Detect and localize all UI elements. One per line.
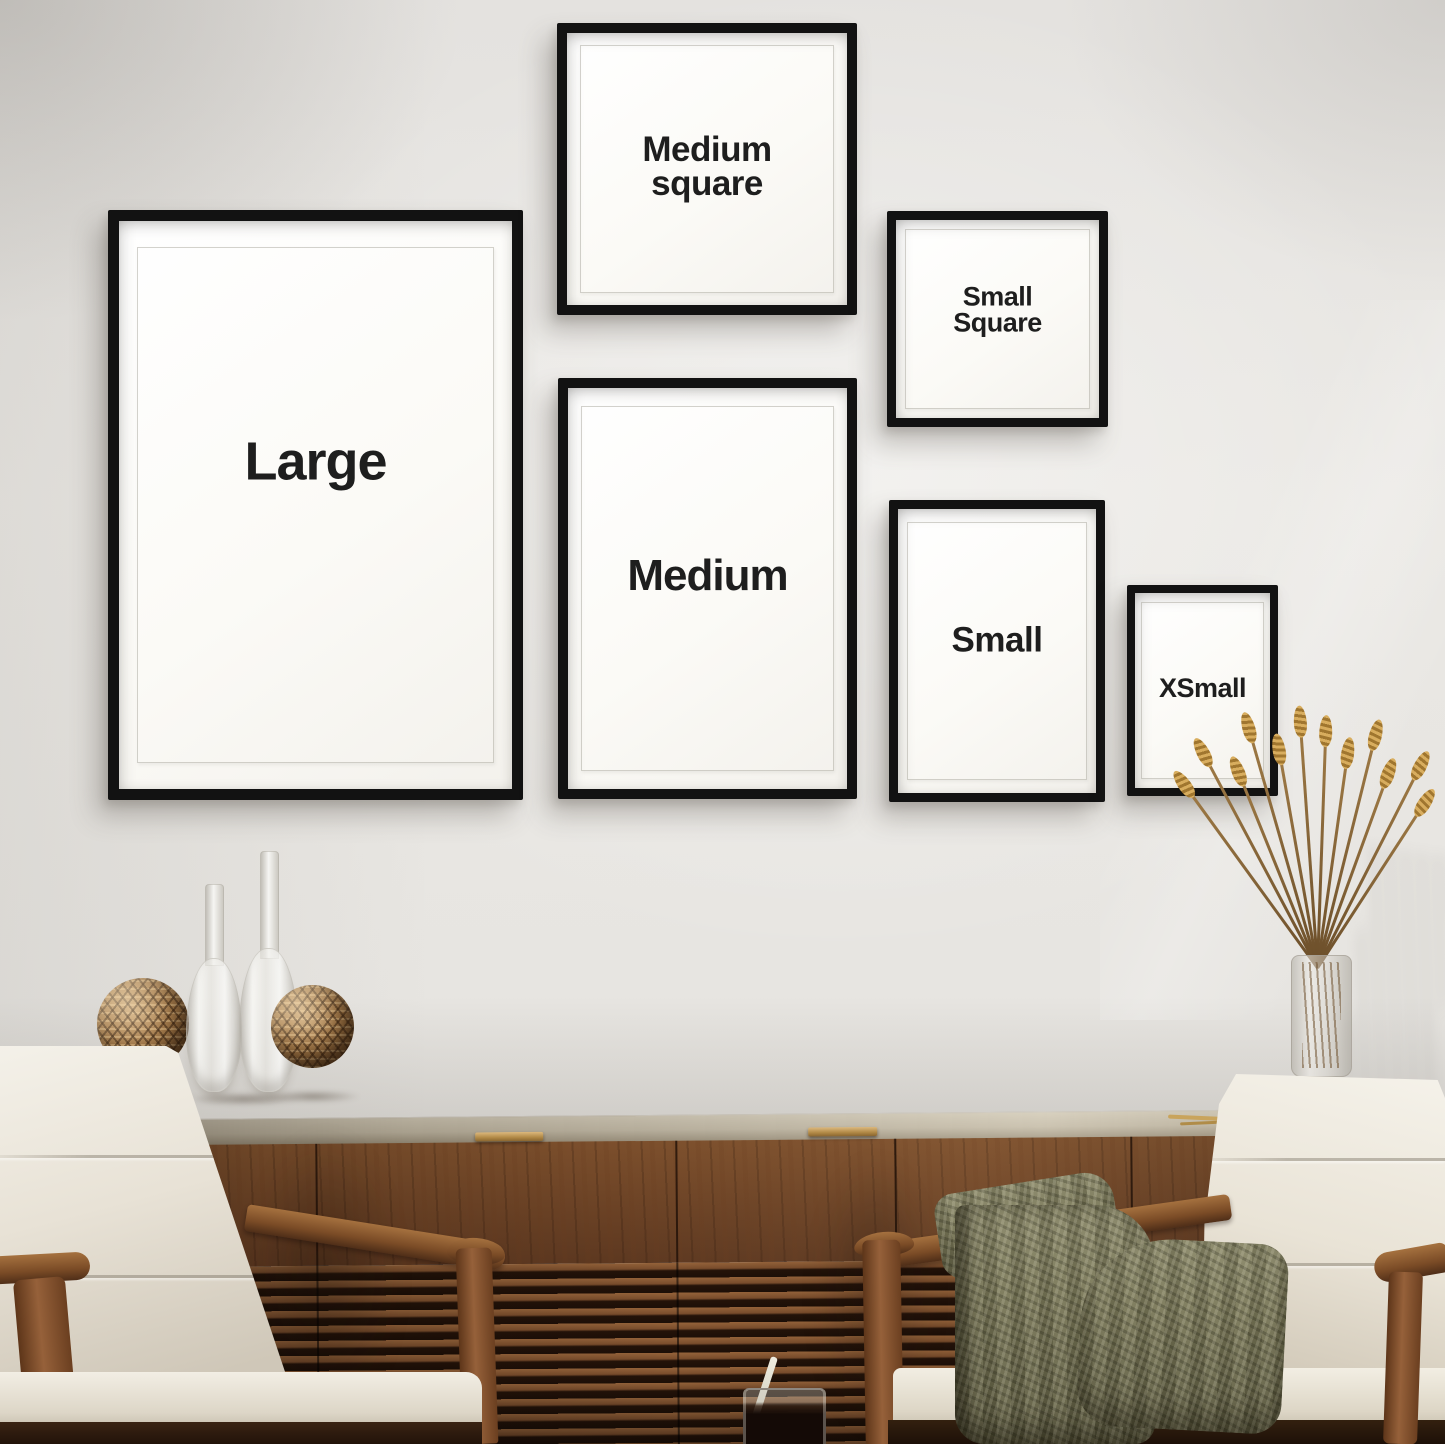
glass-vase-neck <box>260 851 279 959</box>
frame-medium-square-label-line2: square <box>642 166 771 199</box>
frame-medium-square: Medium square <box>557 23 857 315</box>
frame-medium-mat: Medium <box>568 388 847 789</box>
drink-glass <box>743 1388 826 1444</box>
glass-vase-neck <box>205 884 224 966</box>
frame-small-square-label: Small Square <box>953 284 1042 335</box>
rattan-ball <box>271 985 354 1068</box>
object-shadow <box>266 1090 360 1103</box>
right-armchair-near-leg <box>1383 1271 1423 1444</box>
glass-vase-body <box>186 958 242 1092</box>
frame-xsmall-label: XSmall <box>1159 676 1246 702</box>
frame-small: Small <box>889 500 1105 802</box>
frame-large: Large <box>108 210 523 800</box>
frame-medium-label: Medium <box>627 556 787 598</box>
frame-small-mat: Small <box>898 509 1096 793</box>
frame-large-mat: Large <box>119 221 512 789</box>
frame-medium-square-label-line1: Medium <box>642 133 771 166</box>
frame-large-label: Large <box>244 437 386 488</box>
cushion-seam <box>1202 1158 1445 1161</box>
brass-handle <box>808 1127 877 1137</box>
frame-medium: Medium <box>558 378 857 799</box>
frame-small-label: Small <box>952 623 1043 656</box>
living-room-scene: Large Medium square Small Square Medium <box>0 0 1445 1444</box>
left-armchair-frame-base <box>0 1422 482 1444</box>
olive-knit-throw <box>1075 1235 1290 1435</box>
frame-medium-square-label: Medium square <box>642 133 771 200</box>
wheat-glass-vase <box>1291 955 1352 1077</box>
frame-small-square-mat: Small Square <box>896 220 1099 418</box>
sideboard-door-seam <box>675 1141 678 1263</box>
brass-handle <box>475 1132 543 1142</box>
frame-large-mat-bevel <box>137 247 495 764</box>
sideboard-slat-seam <box>676 1263 680 1444</box>
frame-medium-square-mat: Medium square <box>567 33 847 305</box>
frame-small-square-label-line2: Square <box>953 310 1042 336</box>
frame-small-square-label-line1: Small <box>953 284 1042 310</box>
frame-small-square: Small Square <box>887 211 1108 427</box>
